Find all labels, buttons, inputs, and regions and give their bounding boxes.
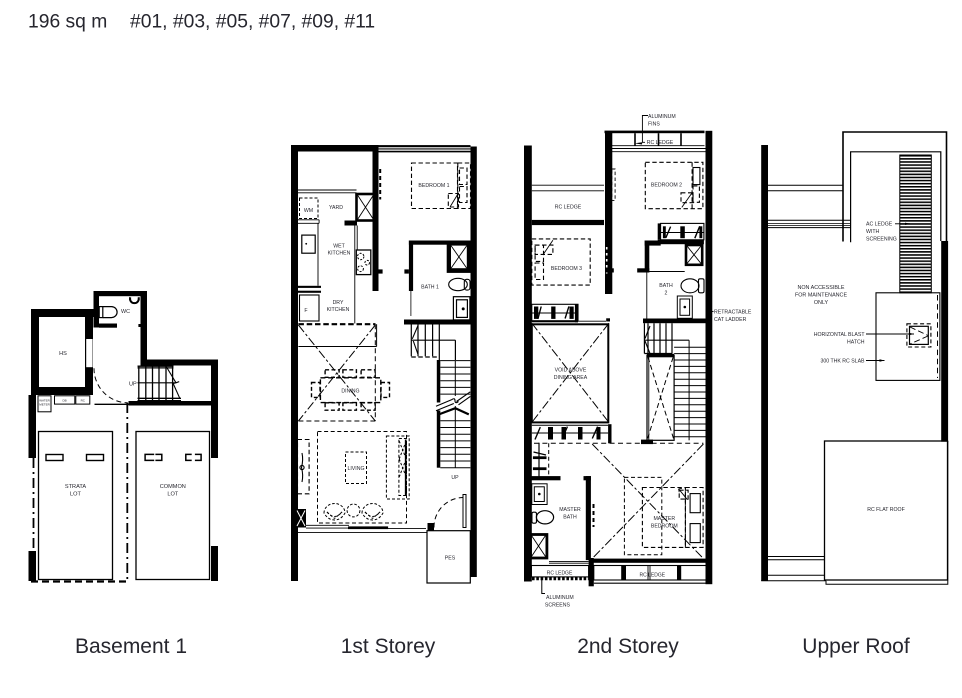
svg-text:BEDROOM 3: BEDROOM 3 [551, 266, 582, 272]
svg-text:RETRACTABLE: RETRACTABLE [714, 310, 752, 316]
svg-text:300 THK RC SLAB: 300 THK RC SLAB [820, 359, 865, 365]
svg-text:Basement 1: Basement 1 [75, 635, 187, 658]
svg-text:DB: DB [63, 399, 67, 403]
svg-text:KITCHEN: KITCHEN [327, 307, 350, 313]
svg-text:YARD: YARD [329, 205, 343, 211]
svg-text:BATH 1: BATH 1 [421, 284, 439, 290]
svg-text:ALUMINUM: ALUMINUM [648, 114, 676, 120]
svg-text:196 sq m: 196 sq m [28, 12, 107, 33]
svg-text:STRATA: STRATA [65, 484, 87, 490]
svg-text:HATCH: HATCH [847, 340, 865, 346]
svg-text:RC LEDGE: RC LEDGE [555, 205, 582, 211]
svg-text:BATH: BATH [659, 283, 673, 289]
svg-text:RC FLAT ROOF: RC FLAT ROOF [867, 507, 905, 513]
svg-text:LIVING: LIVING [347, 466, 364, 472]
svg-text:PES: PES [445, 556, 456, 562]
svg-text:RC LEDGE: RC LEDGE [647, 140, 674, 146]
svg-text:HS: HS [59, 351, 67, 357]
svg-text:UP: UP [451, 475, 459, 481]
svg-text:RC: RC [81, 399, 86, 403]
svg-text:RC LEDGE: RC LEDGE [640, 572, 666, 578]
svg-text:FINS: FINS [648, 121, 660, 127]
svg-text:WITH: WITH [866, 229, 880, 235]
svg-text:2nd Storey: 2nd Storey [577, 635, 679, 658]
svg-text:SCREENS: SCREENS [545, 603, 571, 609]
svg-text:Upper Roof: Upper Roof [802, 635, 910, 658]
svg-text:KITCHEN: KITCHEN [328, 251, 351, 257]
svg-text:1st Storey: 1st Storey [341, 635, 436, 658]
svg-text:HORIZONTAL BLAST: HORIZONTAL BLAST [814, 332, 866, 338]
svg-text:2: 2 [665, 291, 668, 297]
svg-text:DRY: DRY [333, 300, 344, 306]
svg-text:LOT: LOT [167, 492, 178, 498]
svg-text:WET: WET [333, 244, 345, 250]
svg-text:BEDROOM: BEDROOM [651, 523, 678, 529]
svg-text:FOR MAINTENANCE: FOR MAINTENANCE [795, 293, 848, 299]
svg-text:UP: UP [129, 381, 137, 387]
svg-text:NON ACCESSIBLE: NON ACCESSIBLE [797, 285, 844, 291]
svg-text:LOT: LOT [70, 492, 81, 498]
svg-text:RC LEDGE: RC LEDGE [547, 570, 573, 576]
svg-text:BEDROOM 2: BEDROOM 2 [651, 183, 682, 189]
svg-text:COMMON: COMMON [160, 484, 186, 490]
svg-text:#01, #03, #05, #07, #09, #11: #01, #03, #05, #07, #09, #11 [130, 12, 375, 33]
svg-text:SCREENING: SCREENING [866, 237, 897, 243]
svg-text:CAT LADDER: CAT LADDER [714, 317, 747, 323]
svg-text:DINING: DINING [341, 389, 359, 395]
svg-text:WM: WM [304, 208, 313, 214]
svg-text:BEDROOM 1: BEDROOM 1 [418, 183, 449, 189]
svg-text:WC: WC [121, 309, 130, 315]
svg-text:F: F [304, 308, 307, 314]
svg-text:MASTER: MASTER [653, 516, 675, 522]
svg-text:ONLY: ONLY [814, 300, 829, 306]
svg-text:BATH: BATH [563, 515, 577, 521]
svg-text:AC LEDGE: AC LEDGE [866, 222, 893, 228]
svg-text:METER: METER [39, 402, 50, 406]
svg-text:DINING AREA: DINING AREA [554, 375, 588, 381]
svg-text:MASTER: MASTER [559, 507, 581, 513]
svg-text:ALUMINUM: ALUMINUM [546, 595, 574, 601]
svg-text:VOID ABOVE: VOID ABOVE [555, 368, 587, 374]
